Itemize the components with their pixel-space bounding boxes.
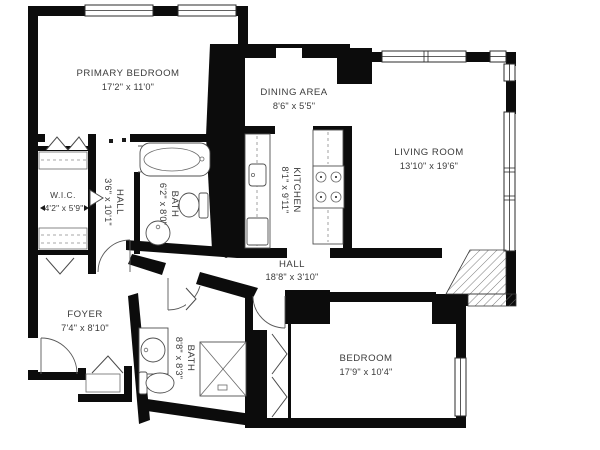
room-bedroom: BEDROOM 17'9" x 10'4"	[339, 353, 392, 377]
room-wic: W.I.C. 4'2" x 5'9"	[40, 190, 89, 213]
bath-primary-label: BATH	[169, 191, 180, 218]
toilet-lower	[139, 372, 174, 394]
bedroom-label: BEDROOM	[339, 353, 392, 364]
room-foyer: FOYER 7'4" x 8'10"	[61, 309, 109, 333]
kitchen-label: KITCHEN	[291, 167, 302, 213]
dining-area-label: DINING AREA	[260, 87, 327, 98]
foyer-closet-shelf	[86, 374, 120, 392]
wic-label: W.I.C.	[50, 190, 76, 200]
shower-stall	[200, 342, 246, 396]
lower-bath-door-swing	[168, 278, 200, 310]
entry-door-swing	[41, 338, 77, 374]
refrigerator	[247, 218, 268, 245]
room-kitchen: KITCHEN 8'1" x 9'11"	[280, 167, 302, 214]
bedroom-closet-bifold-doors	[272, 334, 287, 417]
room-living-room: LIVING ROOM 13'10" x 19'6"	[394, 147, 463, 171]
living-room-dims: 13'10" x 19'6"	[400, 161, 458, 171]
kitchen-dims: 8'1" x 9'11"	[280, 167, 290, 214]
room-bath-lower: BATH 8'8" x 8'3"	[174, 337, 196, 379]
bedroom-door-swing	[253, 296, 285, 328]
bedroom-dims: 17'9" x 10'4"	[340, 367, 393, 377]
hall-main-dims: 18'8" x 3'10"	[266, 272, 319, 282]
bathtub	[140, 143, 210, 176]
primary-bedroom-label: PRIMARY BEDROOM	[76, 68, 179, 79]
toilet-primary	[179, 193, 208, 218]
bath-lower-dims: 8'8" x 8'3"	[174, 337, 184, 379]
bath-primary-dims: 6'2" x 8'0"	[158, 183, 168, 225]
living-room-label: LIVING ROOM	[394, 147, 463, 158]
room-bath-primary: BATH 6'2" x 8'0"	[158, 183, 180, 225]
hall-main-label: HALL	[279, 259, 305, 270]
floor-plan: PRIMARY BEDROOM 17'2" x 11'0" DINING ARE…	[0, 0, 600, 450]
room-hall-main: HALL 18'8" x 3'10"	[266, 259, 319, 282]
vanity-sink	[139, 328, 168, 374]
hall-foyer-door-swing	[98, 240, 130, 272]
wic-shelving	[39, 152, 87, 249]
room-primary-bedroom: PRIMARY BEDROOM 17'2" x 11'0"	[76, 68, 179, 92]
hall-upper-label: HALL	[114, 189, 125, 215]
dining-area-dims: 8'6" x 5'5"	[273, 101, 315, 111]
bath-lower-label: BATH	[185, 345, 196, 372]
foyer-dims: 7'4" x 8'10"	[61, 323, 109, 333]
wic-dims: 4'2" x 5'9"	[45, 203, 84, 213]
primary-bedroom-dims: 17'2" x 11'0"	[102, 82, 154, 92]
stove-cooktop	[313, 166, 344, 208]
room-hall-upper: HALL 3'6" x 10'1"	[103, 178, 125, 226]
wic-door-marker	[90, 190, 103, 206]
foyer-closet-bifold-door	[92, 356, 123, 373]
hall-upper-dims: 3'6" x 10'1"	[103, 178, 113, 226]
room-dining-area: DINING AREA 8'6" x 5'5"	[260, 87, 327, 111]
foyer-label: FOYER	[67, 309, 103, 320]
